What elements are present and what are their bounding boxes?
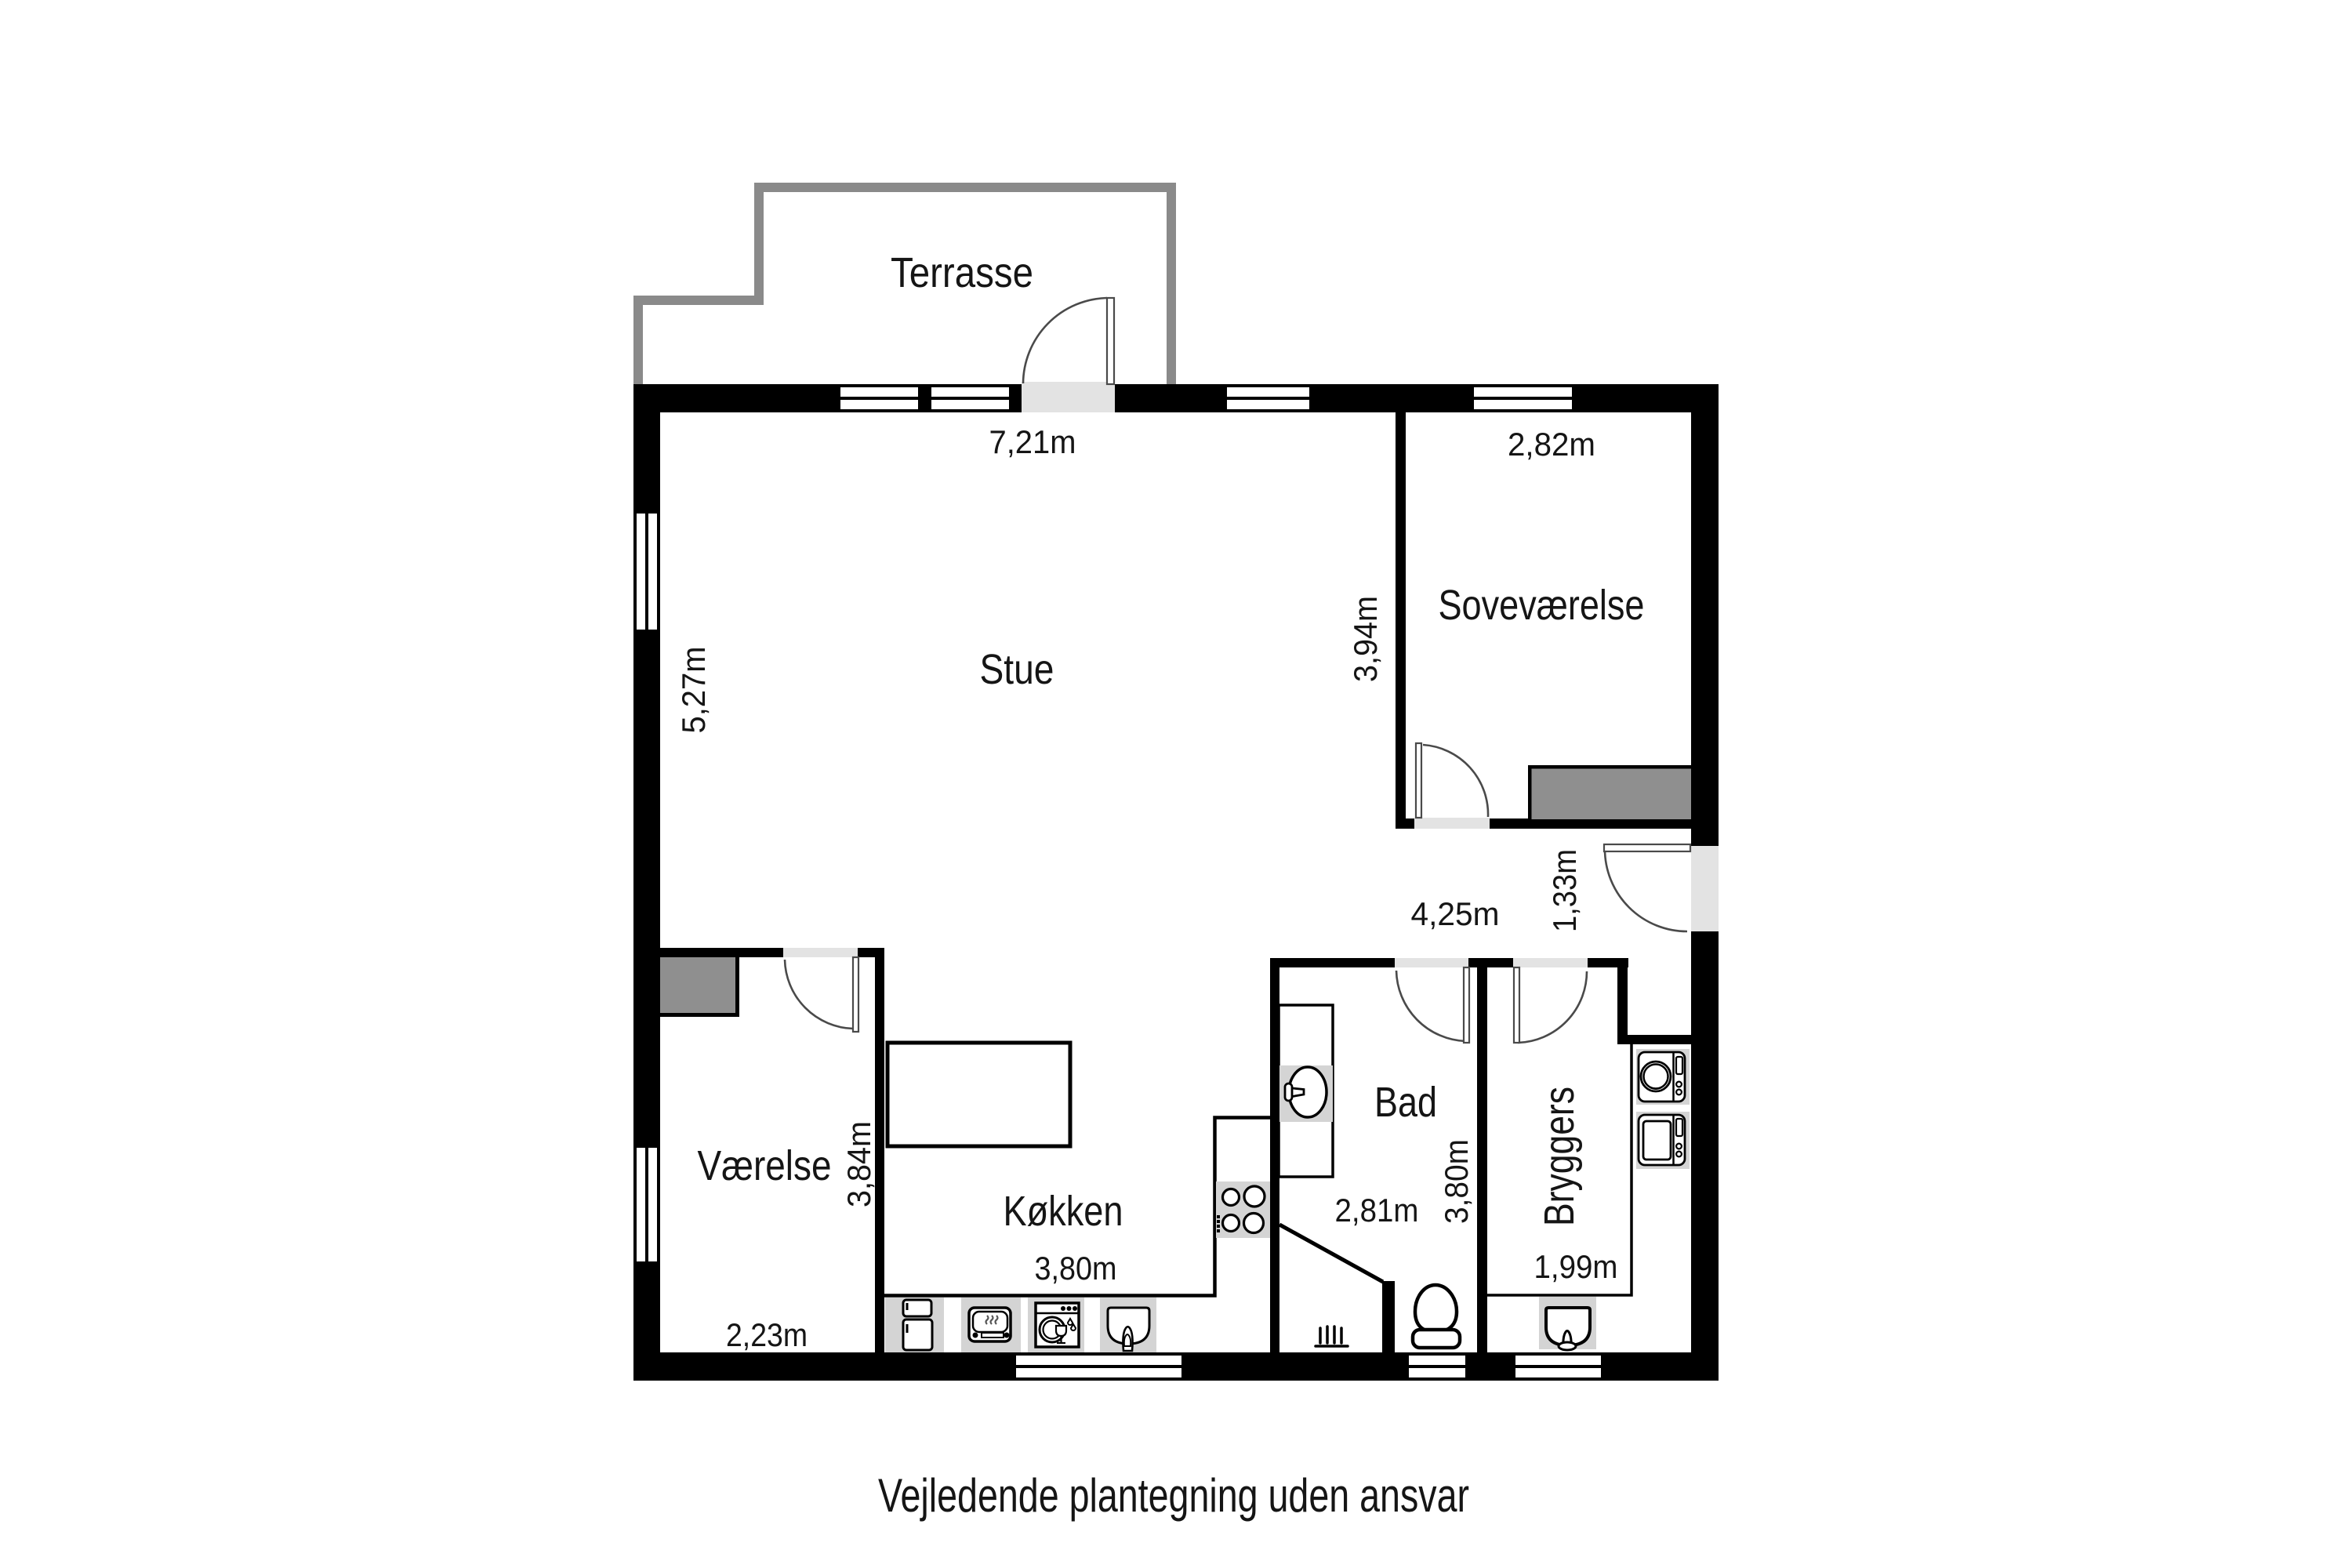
svg-text:7,21m: 7,21m xyxy=(989,423,1076,460)
svg-text:1,99m: 1,99m xyxy=(1534,1248,1618,1285)
svg-text:2,23m: 2,23m xyxy=(726,1316,808,1353)
svg-text:2,82m: 2,82m xyxy=(1508,426,1595,463)
svg-text:2,81m: 2,81m xyxy=(1335,1192,1419,1229)
svg-text:Køkken: Køkken xyxy=(1004,1188,1123,1235)
svg-text:Stue: Stue xyxy=(980,646,1054,693)
svg-text:3,94m: 3,94m xyxy=(1347,596,1384,682)
svg-text:5,27m: 5,27m xyxy=(675,647,712,734)
svg-text:Værelse: Værelse xyxy=(698,1142,832,1189)
svg-text:1,33m: 1,33m xyxy=(1546,849,1583,932)
svg-text:Soveværelse: Soveværelse xyxy=(1439,582,1645,629)
svg-text:3,80m: 3,80m xyxy=(1035,1250,1117,1287)
svg-text:3,84m: 3,84m xyxy=(840,1121,877,1207)
svg-text:Bad: Bad xyxy=(1374,1079,1437,1126)
svg-text:Bryggers: Bryggers xyxy=(1536,1087,1583,1226)
svg-text:Vejledende plantegning uden an: Vejledende plantegning uden ansvar xyxy=(878,1469,1469,1522)
svg-text:4,25m: 4,25m xyxy=(1411,895,1500,932)
svg-text:3,80m: 3,80m xyxy=(1438,1139,1475,1224)
svg-text:Terrasse: Terrasse xyxy=(891,249,1033,296)
